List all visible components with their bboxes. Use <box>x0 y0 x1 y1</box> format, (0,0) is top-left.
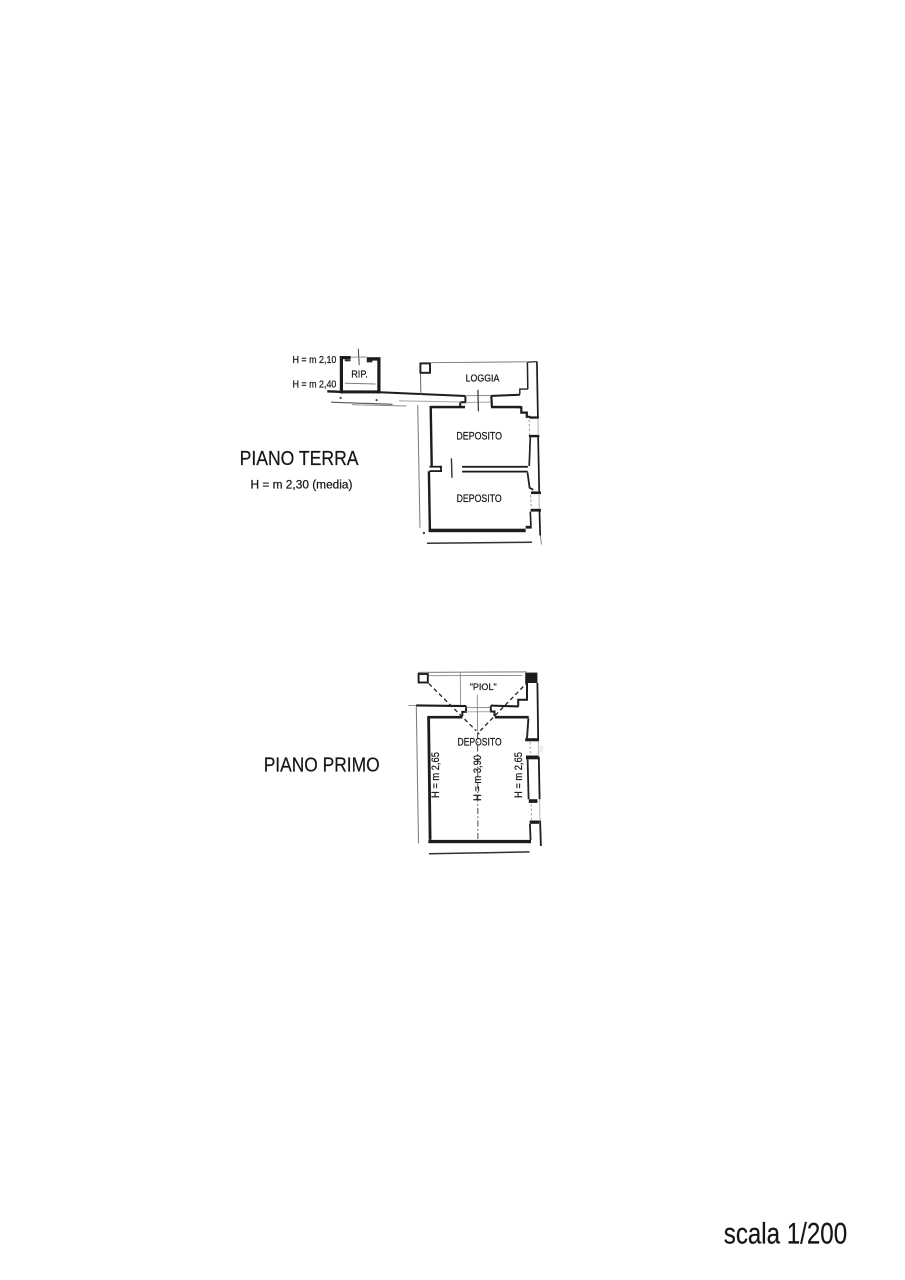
svg-text:H = m 3,90: H = m 3,90 <box>473 755 485 801</box>
svg-text:DEPOSITO: DEPOSITO <box>457 493 502 505</box>
svg-text:LOGGIA: LOGGIA <box>466 373 500 385</box>
svg-text:DEPOSITO: DEPOSITO <box>456 431 502 443</box>
svg-text:H = m 2,10: H = m 2,10 <box>293 354 337 366</box>
svg-text:PIANO PRIMO: PIANO PRIMO <box>264 753 380 775</box>
svg-text:H = m 2,40: H = m 2,40 <box>293 379 337 391</box>
svg-text:PIANO TERRA: PIANO TERRA <box>240 447 359 469</box>
svg-text:H = m 2,65: H = m 2,65 <box>513 752 525 798</box>
svg-text:H = m 2,30 (media): H = m 2,30 (media) <box>251 477 353 491</box>
svg-text:RIP.: RIP. <box>351 368 368 379</box>
svg-text:DEPOSITO: DEPOSITO <box>458 737 502 749</box>
svg-text:"PIOL": "PIOL" <box>470 682 497 692</box>
svg-text:H = m 2,65: H = m 2,65 <box>430 752 442 798</box>
svg-text:scala 1/200: scala 1/200 <box>724 1216 847 1250</box>
